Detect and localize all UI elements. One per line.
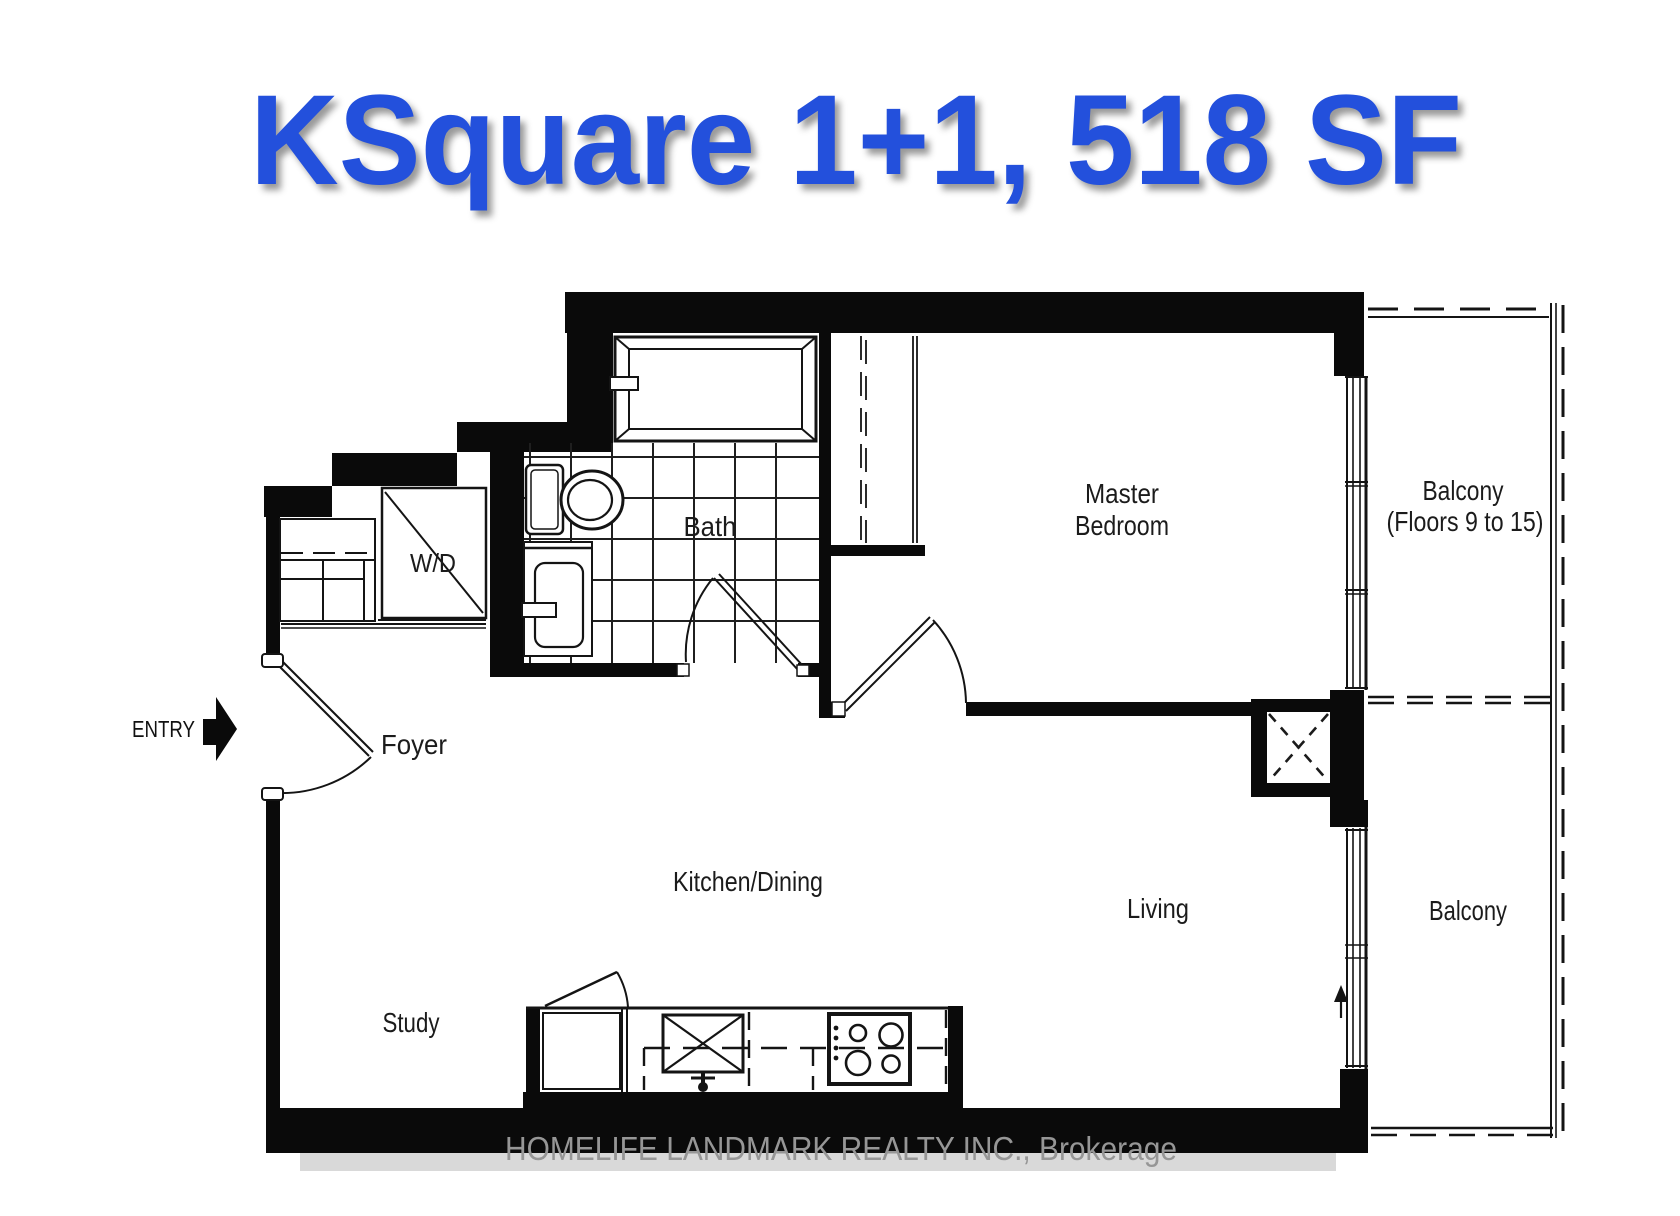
svg-text:Study: Study [383, 1007, 440, 1038]
svg-text:Master: Master [1085, 478, 1159, 509]
svg-text:KSquare 1+1, 518 SF: KSquare 1+1, 518 SF [250, 69, 1462, 212]
svg-text:Balcony: Balcony [1423, 475, 1504, 506]
svg-text:Balcony: Balcony [1429, 895, 1507, 926]
svg-text:Foyer: Foyer [381, 729, 447, 760]
svg-text:(Floors 9 to 15): (Floors 9 to 15) [1387, 506, 1544, 537]
svg-text:Bedroom: Bedroom [1075, 510, 1169, 541]
svg-text:Kitchen/Dining: Kitchen/Dining [673, 866, 823, 897]
svg-text:Bath: Bath [684, 511, 737, 542]
svg-text:ENTRY: ENTRY [132, 716, 195, 742]
svg-text:W/D: W/D [410, 548, 456, 578]
svg-text:Living: Living [1127, 893, 1189, 924]
svg-text:HOMELIFE LANDMARK REALTY INC.,: HOMELIFE LANDMARK REALTY INC., Brokerage [505, 1130, 1177, 1167]
